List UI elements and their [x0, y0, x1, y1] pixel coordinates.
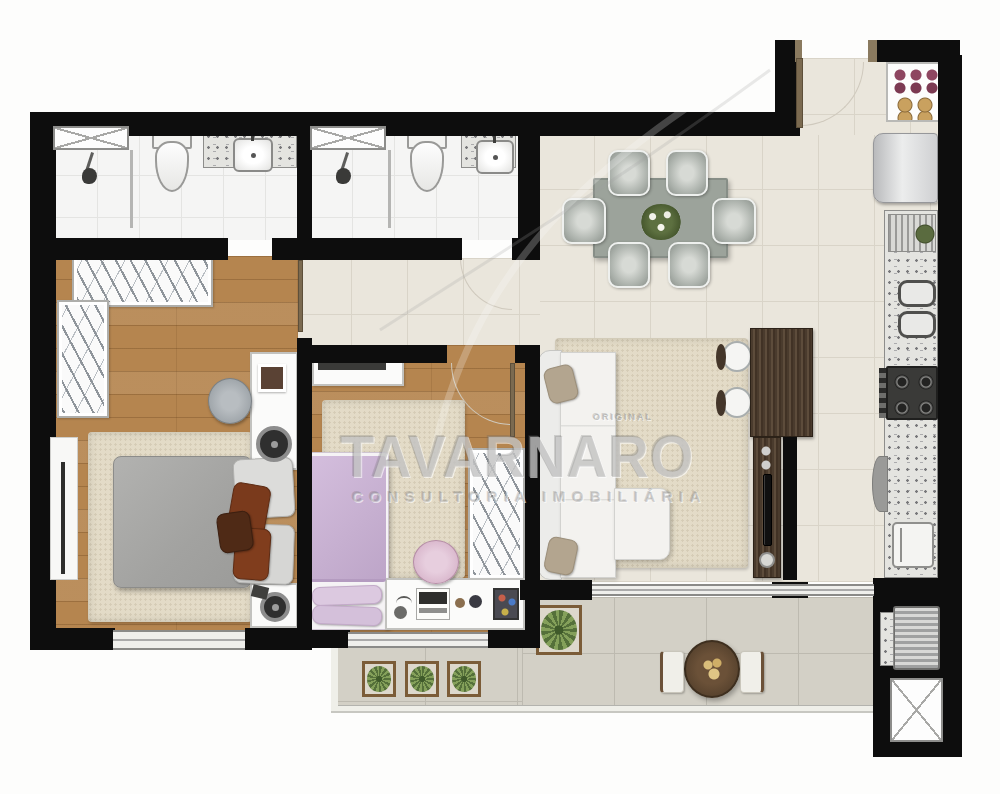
accent-pillow — [215, 510, 254, 554]
bed-pillow — [312, 585, 383, 606]
cooktop-stove — [886, 366, 938, 420]
plant-icon — [452, 666, 476, 692]
bathroom1-sink — [233, 138, 273, 172]
entry-door-leaf — [796, 58, 803, 128]
laptop-trackpad — [419, 608, 447, 613]
kitchen-towel — [872, 456, 888, 512]
wall-bedroom2-bottom-left — [310, 630, 350, 648]
dining-chair — [562, 198, 606, 244]
refrigerator — [873, 133, 938, 203]
shower-head-icon — [82, 168, 97, 184]
wall-kitchen-divider — [783, 437, 797, 580]
wall-outer-top — [30, 112, 778, 136]
table-centerpiece-plant — [640, 204, 682, 240]
toilet-bowl — [410, 141, 444, 192]
bedroom1-side-window-frame — [61, 462, 65, 574]
toilet-bowl — [155, 141, 189, 192]
closet-left — [57, 300, 109, 418]
sofa-chaise — [614, 488, 670, 560]
photo-frame — [493, 588, 519, 620]
kitchen-sink-basin — [898, 280, 936, 307]
bar-stool-back — [716, 390, 726, 416]
bed-pillow — [312, 605, 383, 626]
desk-chair — [208, 378, 252, 424]
wall-bedroom1-bottom-right — [245, 628, 312, 650]
desk-lamp — [394, 606, 407, 619]
speaker-icon — [760, 444, 773, 472]
bar-stool-back — [716, 344, 726, 370]
wheel-decor — [256, 426, 292, 462]
water-heater — [893, 606, 940, 670]
desk-picture-frame — [258, 364, 286, 392]
wall-outer-right — [938, 55, 962, 757]
dining-chair — [666, 150, 708, 196]
plant-icon — [541, 610, 577, 650]
dish-rack — [888, 214, 936, 252]
planter — [447, 661, 481, 697]
planter — [362, 661, 396, 697]
balcony-sliding-door-track — [592, 584, 874, 596]
wall-bathroom1-bottom-left — [30, 238, 228, 260]
plant-icon — [410, 666, 434, 692]
bedroom2-desk-chair — [413, 540, 459, 584]
dining-chair — [712, 198, 756, 244]
balcony-railing-bottom — [333, 705, 873, 713]
single-bed-blanket — [310, 456, 386, 582]
floor-plan-canvas: TAVARNARO CONSULTORIA IMOBILIÁRIA ORIGIN… — [0, 0, 1000, 794]
bar-counter — [750, 328, 813, 437]
entry-door-post-right — [868, 40, 877, 62]
dining-chair — [608, 150, 650, 196]
planter — [405, 661, 439, 697]
dining-chair — [608, 242, 650, 288]
stove-knobs — [879, 368, 886, 418]
table-decor-gold — [700, 656, 726, 682]
bathroom2-window — [310, 126, 386, 150]
shower-glass-panel — [388, 150, 391, 228]
wall-bedroom1-bottom-left — [30, 628, 115, 650]
decor-plate — [759, 552, 775, 568]
closet-top — [72, 253, 213, 307]
plant-icon — [367, 666, 391, 692]
toilet — [150, 130, 194, 192]
wall-living-bottom-left — [520, 580, 592, 600]
bathroom2-sink — [476, 140, 514, 174]
utility-shelf — [880, 612, 894, 666]
wall-bathroom1-bottom-right — [272, 238, 312, 260]
wall-bathroom2-bottom-right — [512, 238, 540, 260]
laptop-keyboard — [419, 592, 447, 604]
microwave — [892, 522, 934, 568]
shower-glass-panel — [130, 150, 133, 228]
wall-bathroom2-bottom-left — [312, 238, 462, 260]
duct-shaft — [890, 678, 943, 742]
balcony-railing-left — [331, 645, 338, 713]
dining-chair — [668, 242, 710, 288]
bedroom1-door-leaf — [298, 260, 303, 332]
bar-stool — [722, 387, 752, 418]
microwave-handle — [900, 528, 902, 562]
bar-stool — [722, 341, 752, 372]
balcony-bench — [740, 651, 764, 693]
dresser-tv — [318, 362, 386, 370]
bedroom2-wardrobe — [468, 448, 525, 580]
wall-bedroom2-top-left — [310, 345, 447, 363]
desk-decor-dot — [455, 598, 465, 608]
bathroom1-window — [53, 126, 129, 150]
wall-bedroom2-bottom-right — [488, 630, 540, 648]
kitchen-sink-basin — [898, 311, 936, 338]
bedroom2-door-leaf — [510, 363, 515, 437]
tv-screen — [763, 474, 772, 546]
balcony-bench — [660, 651, 684, 693]
bedroom1-window — [113, 630, 245, 650]
toilet — [405, 130, 449, 192]
plate-shelf — [886, 62, 942, 122]
wall-bedroom1-right — [297, 338, 312, 650]
bedroom2-window — [348, 632, 488, 648]
shower-head-icon — [336, 168, 351, 184]
desk-decor-dot — [469, 595, 482, 608]
planter-large — [536, 605, 582, 655]
